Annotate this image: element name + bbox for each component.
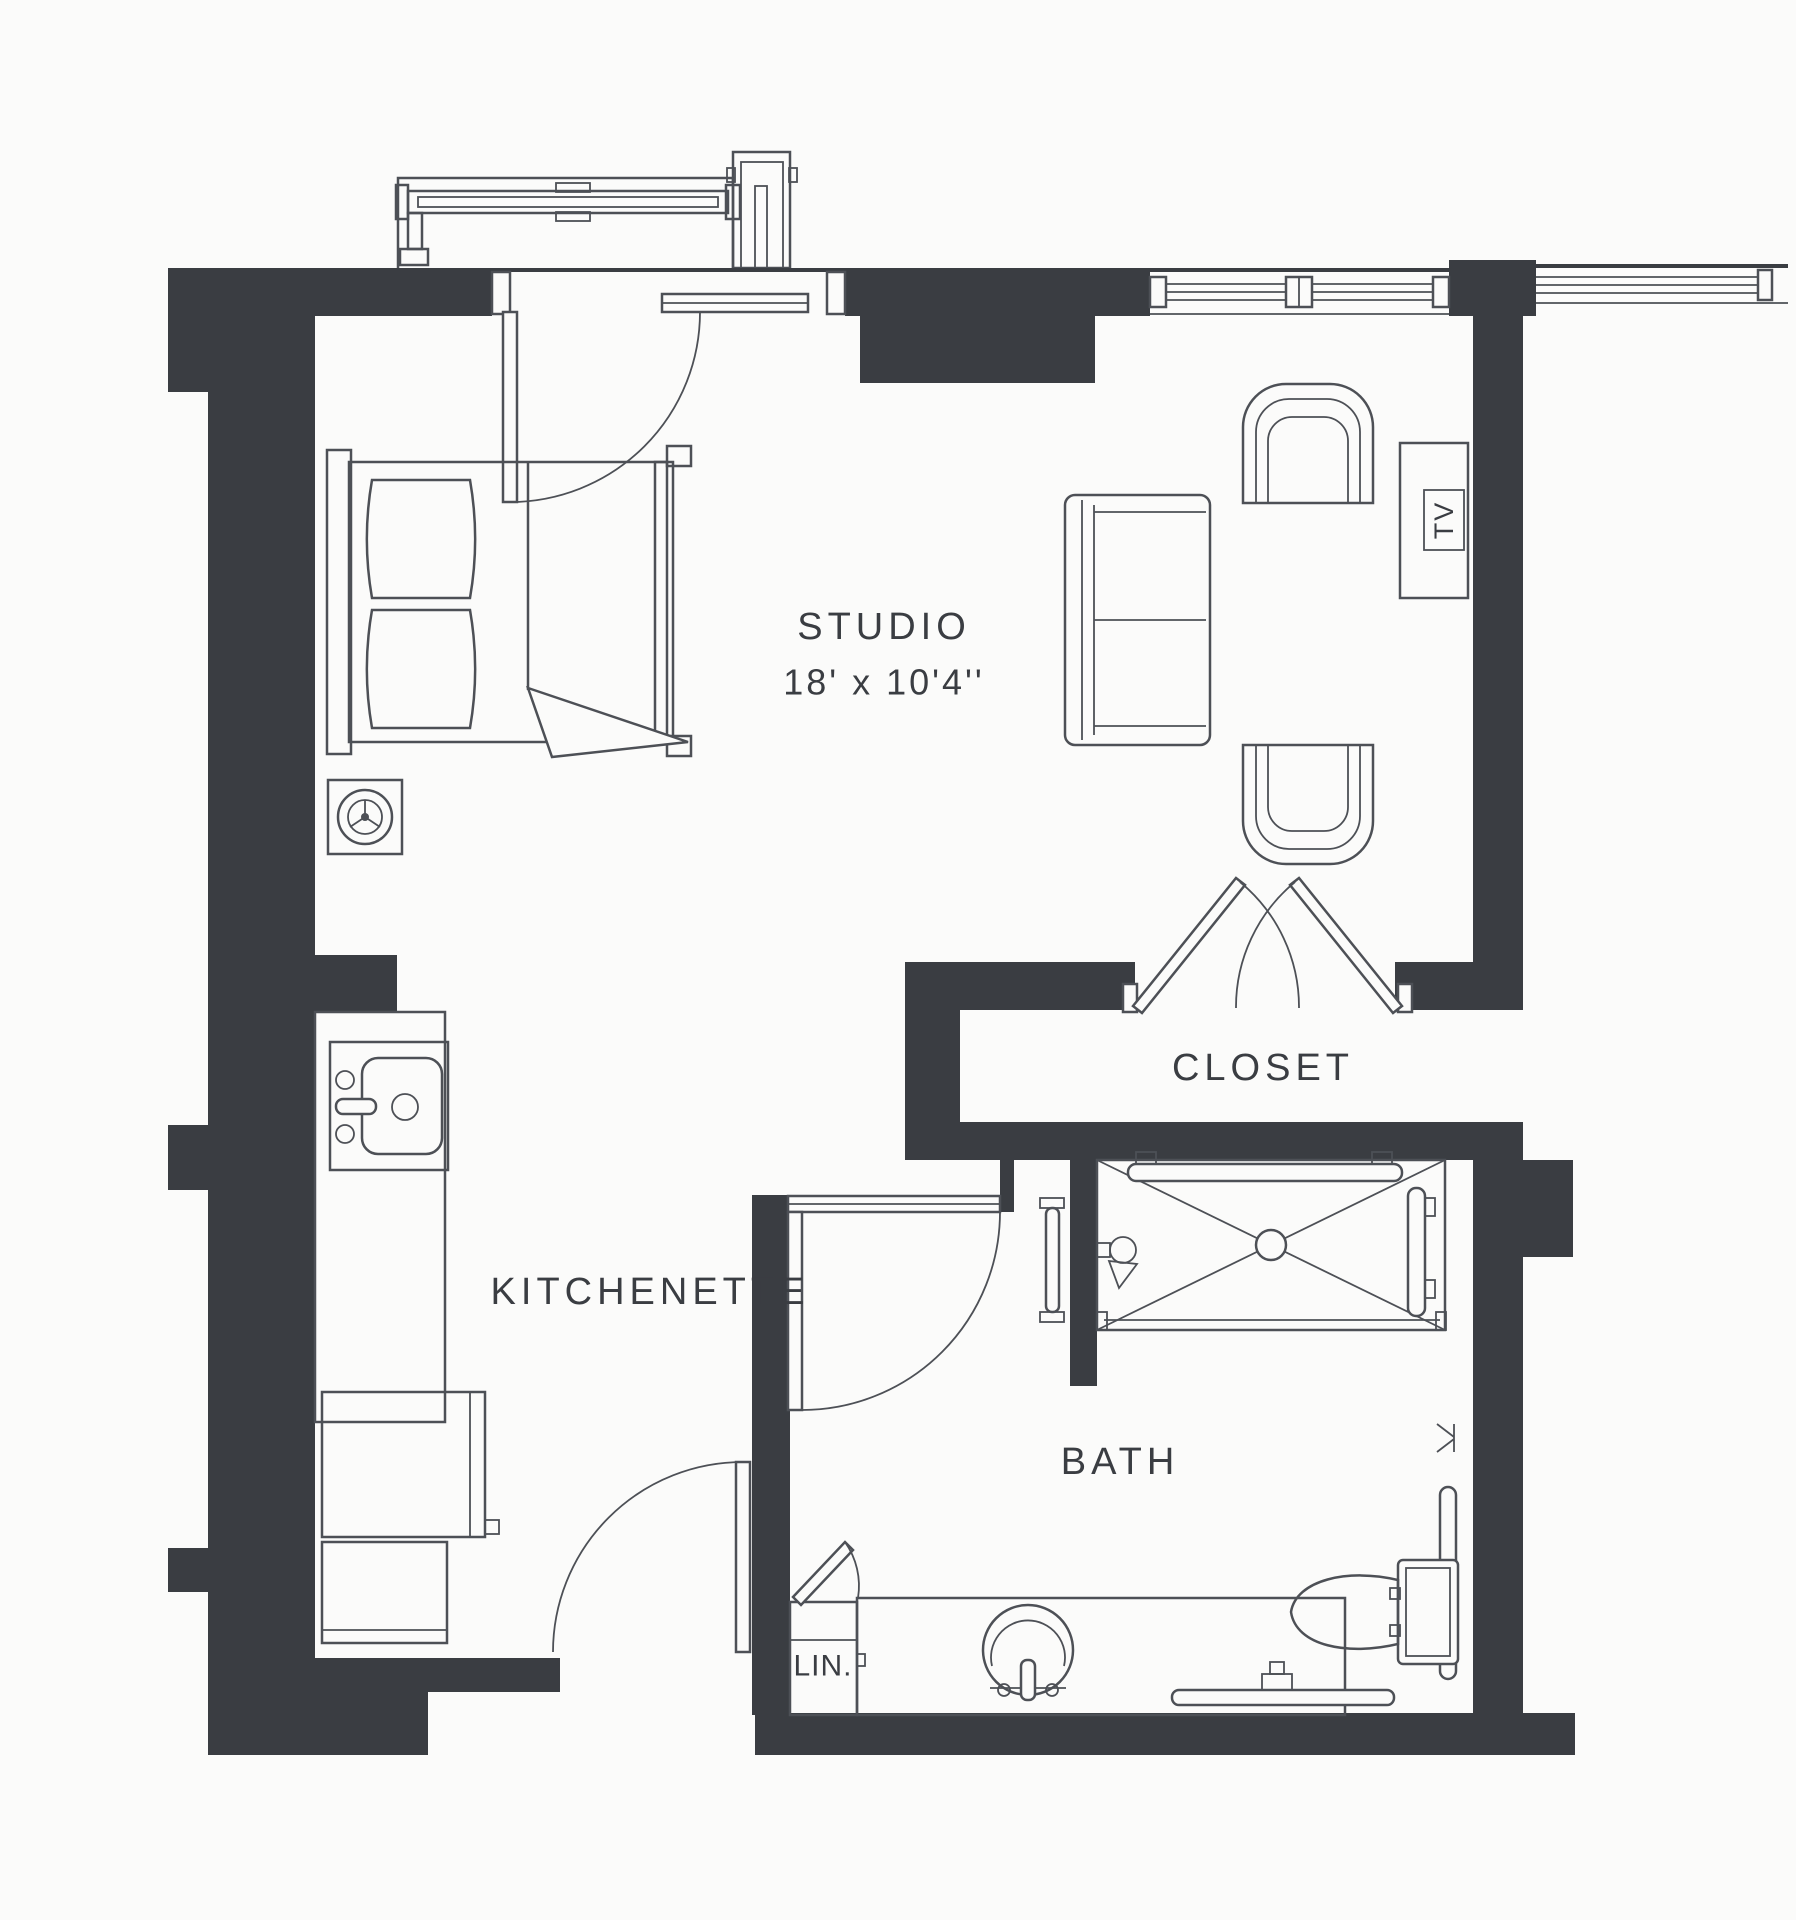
- studio-window: [1150, 270, 1449, 314]
- blanket-fold: [528, 688, 688, 757]
- studio-dimensions: 18' x 10'4'': [783, 662, 985, 703]
- bath-door: [788, 1196, 1000, 1410]
- tp-holder: [1437, 1424, 1454, 1452]
- grab-bar-right: [1408, 1188, 1425, 1316]
- floor-plan: TV: [0, 0, 1796, 1920]
- linen-door: [793, 1542, 853, 1605]
- kitchen-sink: [330, 1042, 448, 1170]
- grab-bar-bottom: [1172, 1662, 1394, 1705]
- grab-bar-top: [1128, 1164, 1402, 1181]
- neighbor-window: [1536, 266, 1788, 303]
- kitchenette-door: [553, 1462, 750, 1652]
- shower-head: [1110, 1237, 1136, 1263]
- towel-bar: [1040, 1198, 1064, 1322]
- tv-label: TV: [1429, 501, 1459, 540]
- armchair-top: [1243, 384, 1373, 503]
- linen-closet: [790, 1542, 865, 1715]
- closet-double-doors: [1123, 878, 1412, 1013]
- studio-label: STUDIO: [797, 606, 971, 648]
- base-cabinet: [322, 1542, 447, 1643]
- toilet-tank: [1398, 1560, 1458, 1664]
- toilet: [1291, 1424, 1458, 1679]
- terrace-railing: [396, 178, 740, 268]
- pillow: [367, 480, 476, 598]
- bath-label: BATH: [1061, 1441, 1180, 1483]
- vanity-sink: [983, 1605, 1073, 1700]
- side-table: [328, 780, 402, 854]
- sofa: [1065, 495, 1210, 745]
- linen-label: LIN.: [793, 1650, 852, 1683]
- pillow: [367, 610, 476, 728]
- shower: [1097, 1152, 1446, 1330]
- closet-label: CLOSET: [1172, 1047, 1354, 1089]
- tv-console: TV: [1400, 443, 1468, 598]
- terrace-column: [727, 152, 797, 268]
- kitchen-counter: [315, 1012, 445, 1422]
- walls: [168, 260, 1575, 1755]
- shower-valve: [1097, 1243, 1110, 1257]
- faucet: [1021, 1660, 1035, 1700]
- shower-drain: [1256, 1230, 1286, 1260]
- refrigerator: [322, 1392, 499, 1537]
- armchair-bottom: [1243, 745, 1373, 864]
- kitchenette-label: KITCHENETTE: [491, 1271, 810, 1313]
